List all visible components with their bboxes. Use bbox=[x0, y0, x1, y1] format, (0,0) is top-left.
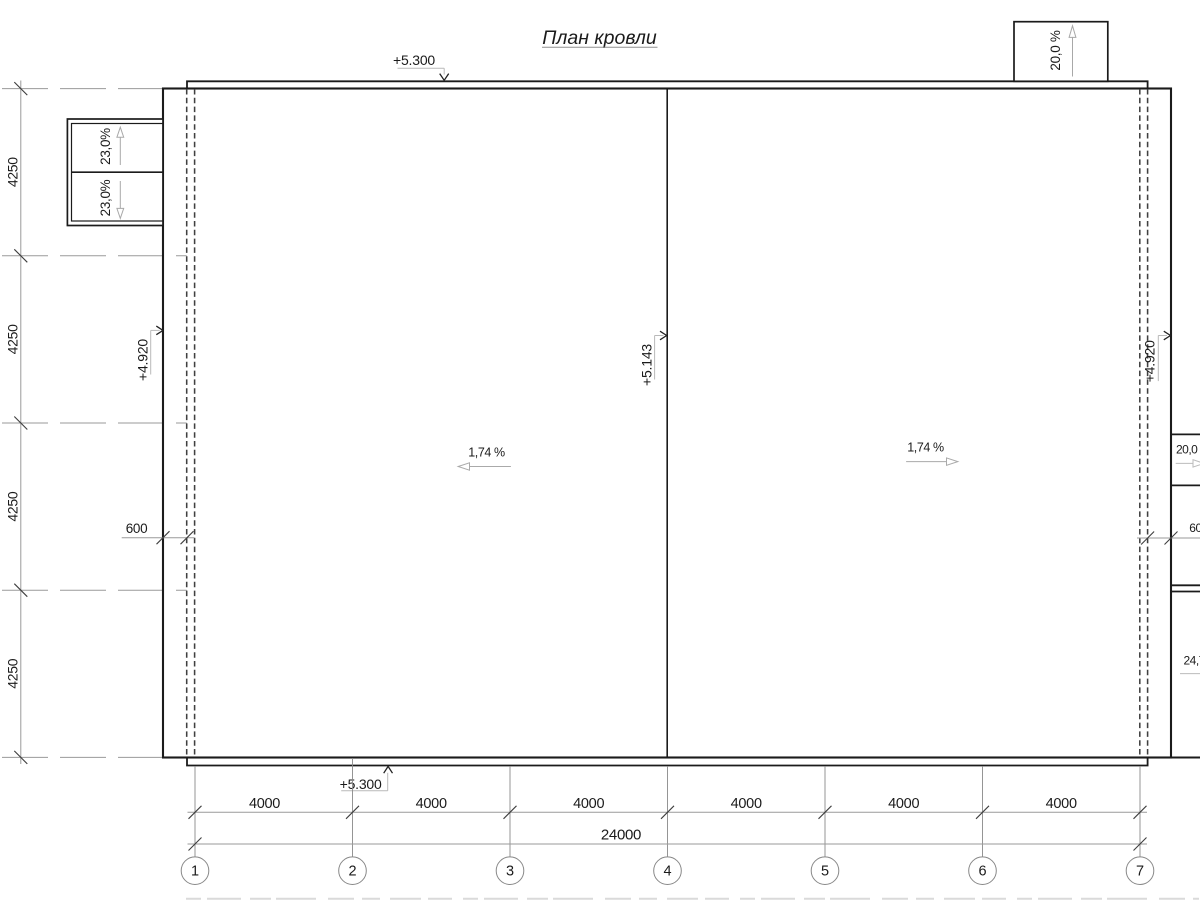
svg-text:6: 6 bbox=[978, 863, 986, 879]
svg-text:4: 4 bbox=[663, 863, 671, 879]
svg-text:4000: 4000 bbox=[573, 796, 604, 812]
svg-text:4000: 4000 bbox=[249, 796, 280, 812]
svg-text:4250: 4250 bbox=[5, 157, 21, 187]
svg-text:24000: 24000 bbox=[601, 826, 641, 843]
svg-text:+5.143: +5.143 bbox=[638, 344, 654, 386]
svg-text:23,0%: 23,0% bbox=[98, 179, 113, 216]
svg-text:План кровли: План кровли bbox=[542, 27, 657, 49]
svg-text:4250: 4250 bbox=[5, 491, 21, 521]
svg-text:20,0 %: 20,0 % bbox=[1176, 443, 1200, 457]
svg-text:4000: 4000 bbox=[1046, 796, 1077, 812]
svg-text:5: 5 bbox=[821, 863, 829, 879]
svg-text:4000: 4000 bbox=[888, 796, 919, 812]
svg-text:3: 3 bbox=[506, 863, 514, 879]
svg-text:1: 1 bbox=[191, 863, 199, 879]
svg-text:4250: 4250 bbox=[5, 658, 21, 688]
svg-text:1,74 %: 1,74 % bbox=[907, 441, 944, 455]
svg-text:4000: 4000 bbox=[416, 796, 447, 812]
svg-text:+4.920: +4.920 bbox=[135, 339, 151, 381]
svg-text:600: 600 bbox=[126, 521, 148, 536]
svg-text:7: 7 bbox=[1136, 863, 1144, 879]
svg-text:4000: 4000 bbox=[731, 796, 762, 812]
svg-text:20,0 %: 20,0 % bbox=[1048, 30, 1063, 71]
svg-text:1,74 %: 1,74 % bbox=[468, 446, 505, 460]
svg-text:600: 600 bbox=[1189, 521, 1200, 535]
svg-text:23,0%: 23,0% bbox=[98, 128, 113, 165]
svg-text:+5.300: +5.300 bbox=[393, 52, 435, 68]
svg-text:+4.920: +4.920 bbox=[1142, 340, 1158, 382]
svg-text:24,7 %: 24,7 % bbox=[1184, 654, 1200, 668]
svg-text:4250: 4250 bbox=[5, 324, 21, 354]
svg-text:+5.300: +5.300 bbox=[340, 776, 382, 792]
svg-text:2: 2 bbox=[348, 863, 356, 879]
